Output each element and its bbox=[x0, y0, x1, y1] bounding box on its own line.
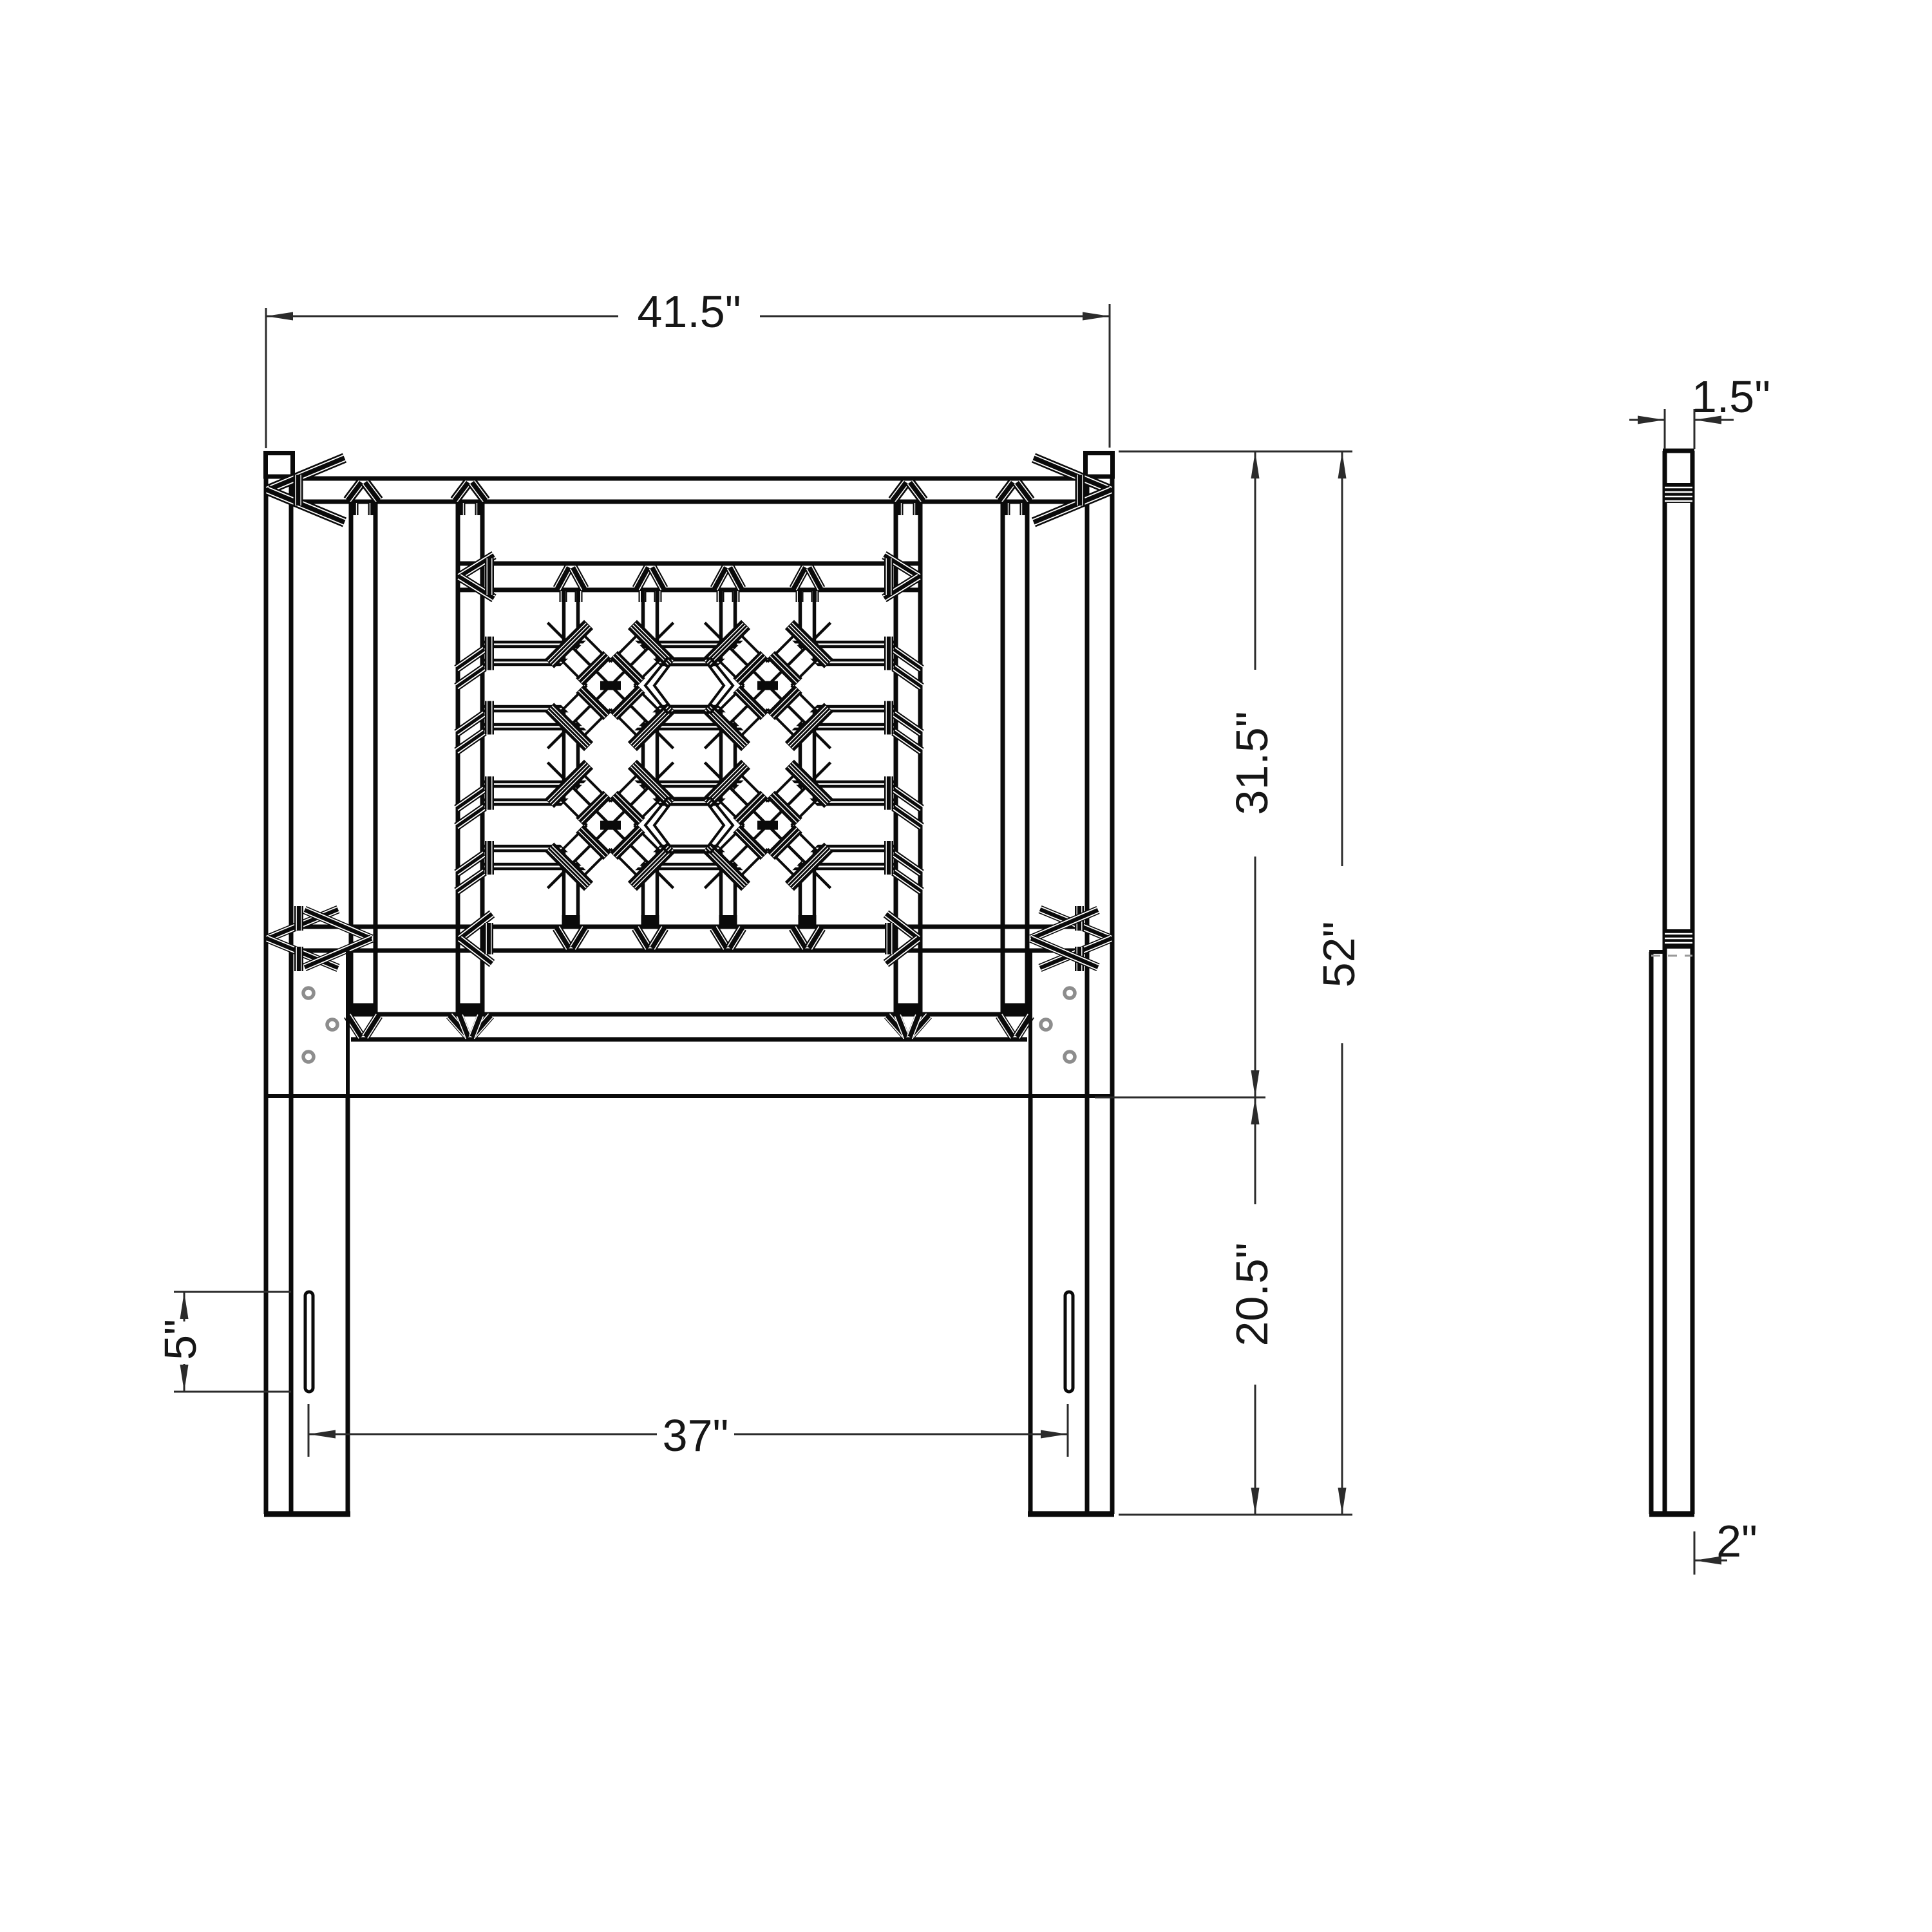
svg-text:31.5": 31.5" bbox=[1227, 711, 1277, 815]
svg-text:5": 5" bbox=[155, 1319, 205, 1360]
svg-text:37": 37" bbox=[663, 1410, 729, 1461]
svg-text:52": 52" bbox=[1314, 922, 1364, 988]
svg-text:41.5": 41.5" bbox=[637, 287, 741, 337]
svg-text:2": 2" bbox=[1716, 1516, 1757, 1566]
svg-text:1.5": 1.5" bbox=[1692, 372, 1770, 422]
svg-text:20.5": 20.5" bbox=[1227, 1242, 1277, 1346]
